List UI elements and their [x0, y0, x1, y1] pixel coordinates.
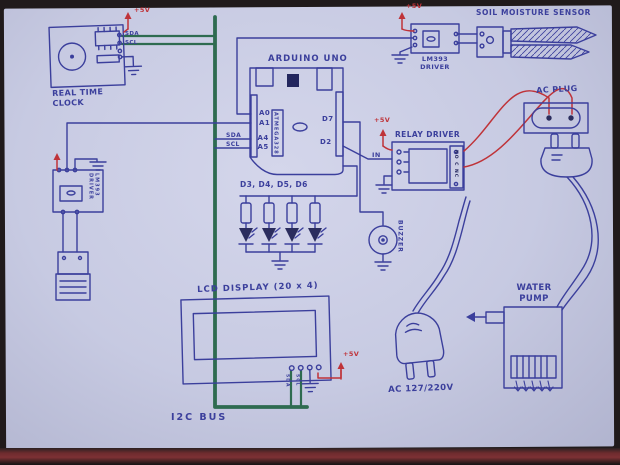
- plus5v-label-relay: +5V: [374, 116, 390, 124]
- rtc-label: REAL TIME CLOCK: [52, 87, 104, 109]
- water-pump: [466, 307, 562, 391]
- soil-moisture-sensor: [477, 27, 596, 59]
- lm393-left-label: LM393 DRIVER: [87, 173, 100, 213]
- sensor-prong-bottom: [511, 45, 589, 59]
- pin-d7-label: D7: [322, 115, 333, 124]
- ac-socket: [524, 103, 588, 133]
- wire-a1-to-driver: [67, 123, 251, 170]
- usb-connector: [256, 68, 273, 86]
- buzzer-label: BUZZER: [396, 220, 404, 264]
- right-pin-header: [336, 92, 343, 156]
- relay-title: RELAY DRIVER: [395, 130, 460, 139]
- wire-d3-d6-to-leds: [343, 166, 357, 196]
- lcd-pin-scl-label: SCL: [294, 374, 300, 392]
- ac-supply-label: AC 127/220V: [388, 383, 454, 396]
- led-branch-3: [285, 196, 303, 252]
- rtc-power: [124, 12, 132, 32]
- relay-body: [409, 149, 447, 183]
- pin-a4-label: A4: [258, 134, 269, 143]
- water-pump-label: WATER PUMP: [508, 283, 560, 304]
- photo-of-hand-drawn-schematic: REAL TIME CLOCK +5V SDA SCL ARDUINO UNO …: [0, 0, 620, 465]
- pump-outlet-pipe: [486, 312, 504, 323]
- icsp-header: [287, 74, 299, 87]
- power-jack: [317, 68, 332, 90]
- lcd-module: [181, 296, 331, 395]
- lm393-top-label: LM393 DRIVER: [412, 55, 458, 71]
- led-array: [239, 196, 357, 269]
- relay-terminals-label: NO C NC: [453, 150, 459, 186]
- buzzer: [369, 226, 397, 270]
- soil-sensor-label: SOIL MOISTURE SENSOR: [476, 8, 591, 17]
- pin-a0-label: A0: [259, 109, 270, 118]
- arduino-title: ARDUINO UNO: [268, 54, 348, 65]
- water-flow-arrow: [466, 312, 475, 322]
- plus5v-label-top-driver: +5V: [406, 2, 422, 10]
- pin-d2-label: D2: [320, 138, 331, 147]
- mains-plug: [393, 311, 447, 381]
- soil-probe: [56, 214, 90, 300]
- relay-in-label: IN: [372, 151, 381, 159]
- schematic-drawing: [0, 0, 620, 465]
- sensor-prong-top: [511, 27, 596, 43]
- mains-cord: [413, 197, 470, 313]
- led-pins-label: D3, D4, D5, D6: [240, 180, 308, 189]
- led-branch-4: [308, 196, 326, 252]
- pump-intake-grille: [511, 356, 556, 378]
- bus-scl-label: SCL: [226, 141, 240, 149]
- rtc-pin-scl-label: SCL: [125, 40, 138, 47]
- plus5v-label-lcd: +5V: [343, 350, 359, 358]
- wire-d7-to-buzzer: [343, 122, 383, 225]
- plus5v-label-rtc: +5V: [134, 6, 150, 14]
- rtc-pin-sda-label: SDA: [125, 31, 139, 38]
- i2c-bus-label: I2C BUS: [171, 412, 227, 424]
- i2c-bus-line: [122, 17, 307, 407]
- pin-a1-label: A1: [259, 119, 270, 128]
- left-pin-header: [251, 95, 257, 157]
- water-intake-arrows: [515, 381, 554, 391]
- led-branch-1: [239, 196, 257, 252]
- led-branch-2: [262, 196, 280, 252]
- lcd-pin-sda-label: SDA: [284, 374, 290, 392]
- arduino-chip-label: ATMEGA328: [272, 112, 278, 156]
- wire-a0-to-driver: [237, 38, 413, 114]
- pin-a5-label: A5: [258, 143, 269, 152]
- bus-sda-label: SDA: [226, 132, 241, 140]
